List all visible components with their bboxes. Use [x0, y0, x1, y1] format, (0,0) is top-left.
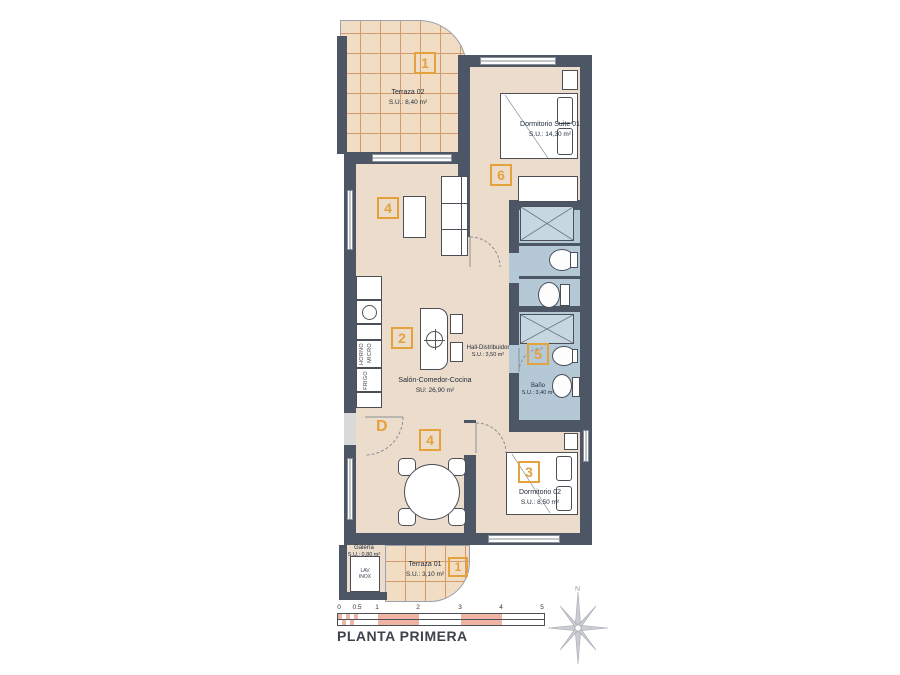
wall — [517, 276, 580, 279]
sink-pedestal — [572, 349, 578, 363]
window — [372, 154, 452, 162]
kitchen-counter — [356, 392, 382, 408]
wall — [509, 420, 592, 432]
nightstand — [562, 70, 578, 90]
scale-bar-body — [337, 613, 545, 626]
door-opening — [509, 253, 519, 283]
marker-dormitorio-02: 3 — [518, 461, 540, 483]
window — [488, 535, 560, 543]
compass-rose-icon: N — [545, 586, 611, 666]
kitchen-sink-unit — [356, 300, 382, 324]
sofa — [441, 176, 468, 256]
toilet-tank — [572, 377, 580, 397]
terrace-02-deck — [340, 20, 467, 154]
nightstand — [564, 433, 578, 450]
window — [347, 190, 353, 250]
room-label-bano: Baño S.U.: 3,40 m² — [512, 382, 564, 398]
marker-salon-living: 4 — [377, 197, 399, 219]
entrance-door-opening — [344, 413, 356, 445]
marker-salon-kitchen: 2 — [391, 327, 413, 349]
marker-terraza-01: 1 — [448, 557, 468, 577]
shower-bano — [520, 314, 574, 344]
room-label-terraza-02: Terraza 02 S.U.: 8,40 m² — [358, 88, 458, 107]
room-label-suite: Dormitorio Suite 01 S.U.: 14,30 m² — [495, 120, 605, 139]
scale-bar-ticks: 0 0.5 1 2 3 4 5 — [337, 604, 543, 613]
marker-suite: 6 — [490, 164, 512, 186]
pillow — [556, 456, 572, 481]
room-label-salon: Salón-Comedor-Cocina SU: 26,90 m² — [380, 376, 490, 395]
sink-pedestal — [570, 252, 578, 268]
marker-bano: 5 — [527, 343, 549, 365]
door-opening — [464, 423, 476, 455]
floor-plan-canvas: HORNO MICRO FRIGO LAV INOX — [0, 0, 900, 675]
plan-title: PLANTA PRIMERA — [337, 628, 468, 644]
kitchen-counter — [356, 276, 382, 300]
shower-suite — [520, 206, 574, 241]
toilet-suite — [538, 282, 560, 308]
window — [480, 57, 556, 65]
window — [583, 430, 589, 462]
kitchen-counter — [356, 324, 382, 340]
fridge-label: FRIGO — [364, 371, 370, 390]
marker-salon-dining: 4 — [419, 429, 441, 451]
washer-label-line2: INOX — [359, 574, 371, 580]
wall — [517, 243, 580, 246]
stool — [450, 314, 463, 334]
wardrobe-suite — [518, 176, 578, 202]
dining-table — [404, 464, 460, 520]
kitchen-island — [420, 308, 448, 370]
room-label-galeria: Galería S.U.: 0,80 m² — [341, 544, 387, 560]
microwave-label: MICRO — [368, 343, 374, 363]
toilet-tank — [560, 284, 570, 306]
window — [347, 458, 353, 520]
wall — [337, 36, 347, 154]
room-label-dormitorio-02: Dormitorio 02 S.U.: 8,50 m² — [505, 488, 575, 507]
room-label-hall: Hall-Distribuidor S.U.: 3,50 m² — [462, 344, 514, 360]
door-label: D — [376, 418, 388, 436]
wall — [339, 592, 387, 600]
washer-unit: LAV INOX — [350, 556, 380, 592]
oven-label: HORNO — [360, 343, 366, 365]
marker-terraza-02: 1 — [414, 52, 436, 74]
coffee-table — [403, 196, 426, 238]
compass-north-label: N — [575, 586, 580, 593]
